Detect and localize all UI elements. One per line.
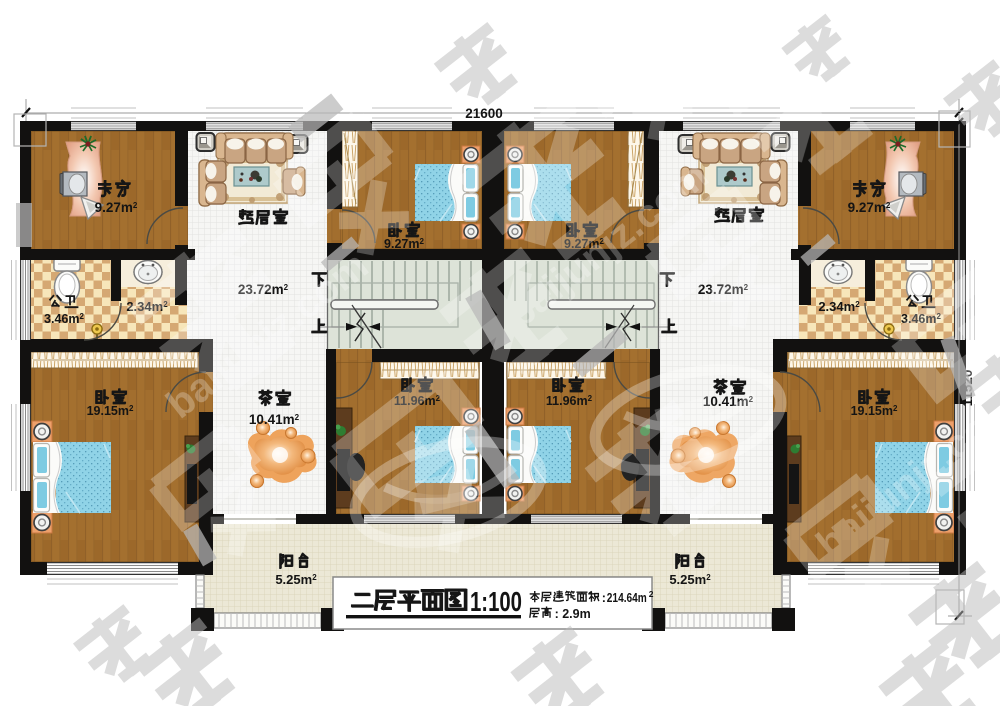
- svg-text:5.25m2: 5.25m2: [669, 572, 711, 587]
- svg-text::: :: [602, 591, 606, 605]
- svg-text:5.25m2: 5.25m2: [275, 572, 317, 587]
- svg-text:11.96m2: 11.96m2: [546, 394, 593, 408]
- svg-text:21600: 21600: [465, 106, 503, 121]
- svg-text:9.27m2: 9.27m2: [384, 237, 424, 251]
- svg-text:9.27m2: 9.27m2: [848, 200, 891, 215]
- svg-text:: 2.9m: : 2.9m: [555, 607, 591, 621]
- svg-text:214.64m: 214.64m: [607, 591, 647, 605]
- svg-text:2.34m2: 2.34m2: [818, 299, 860, 314]
- svg-text:9.27m2: 9.27m2: [95, 200, 138, 215]
- svg-text:2: 2: [649, 589, 654, 599]
- svg-text:19.15m2: 19.15m2: [87, 404, 134, 418]
- svg-text:1:100: 1:100: [470, 586, 522, 617]
- svg-text:10.41m2: 10.41m2: [249, 412, 300, 427]
- svg-text:19.15m2: 19.15m2: [851, 404, 898, 418]
- svg-text:3.46m2: 3.46m2: [44, 312, 84, 326]
